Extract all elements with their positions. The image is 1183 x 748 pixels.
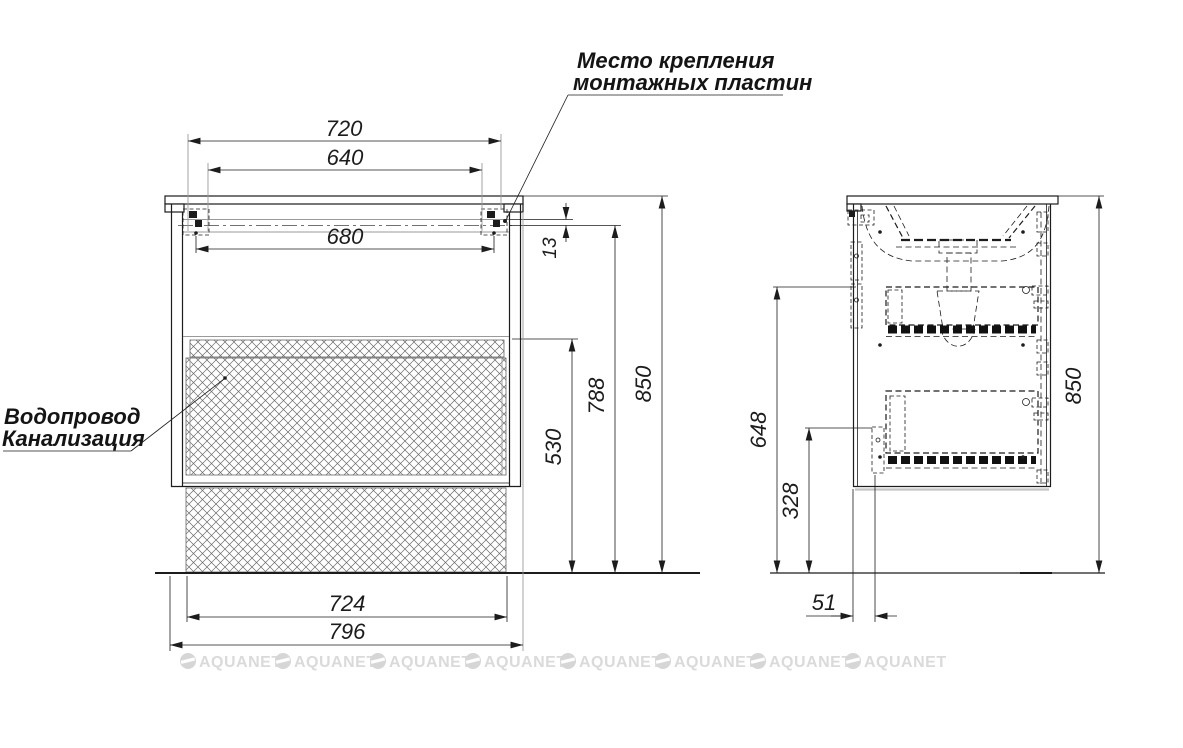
watermark-text: AQUANET [199,654,282,671]
dim-clearance-height: 530 [512,339,578,573]
mounting-label-line2: монтажных пластин [573,70,812,95]
side-back-fittings [1023,212,1049,483]
watermark-item: AQUANET [750,653,852,671]
dim-value-850-front: 850 [631,365,656,402]
dim-mount-height: 788 [584,226,615,574]
dim-value-724: 724 [329,591,366,616]
watermark-item: AQUANET [370,653,472,671]
watermark-item: AQUANET [560,653,662,671]
dim-value-720: 720 [326,116,363,141]
watermark-item: AQUANET [275,653,377,671]
side-front-brackets [851,242,884,473]
dim-plates-inner-width: 640 [208,145,482,231]
mounting-plates-annotation: Место крепления монтажных пластин [503,48,812,223]
watermark-text: AQUANET [484,654,567,671]
watermark-text: AQUANET [579,654,662,671]
front-countertop-left-cap [165,204,184,212]
dim-body-width: 724 [187,576,507,622]
side-view-drawing [770,196,1105,573]
watermark-item: AQUANET [655,653,757,671]
dim-value-640: 640 [327,145,364,170]
watermark-item: AQUANET [845,653,947,671]
dim-value-680: 680 [327,224,364,249]
front-view-drawing [155,196,700,573]
dim-value-51: 51 [812,590,836,615]
dim-value-13: 13 [540,237,561,259]
front-mounting-plate-left [183,209,209,235]
front-mounting-plate-right [481,209,507,235]
dim-value-328: 328 [778,482,803,519]
dim-front-offset: 51 [806,475,897,622]
dim-value-850-side: 850 [1061,367,1086,404]
watermark-text: AQUANET [674,654,757,671]
technical-drawing: 720 640 680 13 530 [0,0,1183,748]
dim-rail-offset: 13 [509,203,621,259]
plumbing-label-line2: Канализация [2,426,145,451]
dim-upper-mount-height: 648 [746,287,856,573]
dim-lower-mount-height: 328 [778,428,872,573]
dim-total-height-side: 850 [1058,196,1104,573]
dim-value-796: 796 [329,619,366,644]
dim-value-788: 788 [584,377,609,414]
dim-plates-outer-width: 720 [188,116,501,231]
watermark-item: AQUANET [465,653,567,671]
front-countertop [165,196,523,204]
watermark-text: AQUANET [864,654,947,671]
side-upper-drawer [886,287,1038,337]
front-plumbing-hatch-zone [183,337,509,573]
side-cabinet-body [853,204,1051,490]
drawing-canvas: 720 640 680 13 530 [0,0,1183,748]
watermark-text: AQUANET [389,654,472,671]
dim-plates-center-width: 680 [196,224,494,253]
watermark-row: AQUANET AQUANET AQUANET AQUANET AQUANET … [180,653,947,671]
watermark-item: AQUANET [180,653,282,671]
watermark-text: AQUANET [769,654,852,671]
side-countertop [847,196,1058,204]
dim-value-530: 530 [541,428,566,465]
dim-value-648: 648 [746,411,771,448]
side-lower-drawer [886,391,1038,468]
side-mounting-bracket [848,210,874,225]
watermark-text: AQUANET [294,654,377,671]
